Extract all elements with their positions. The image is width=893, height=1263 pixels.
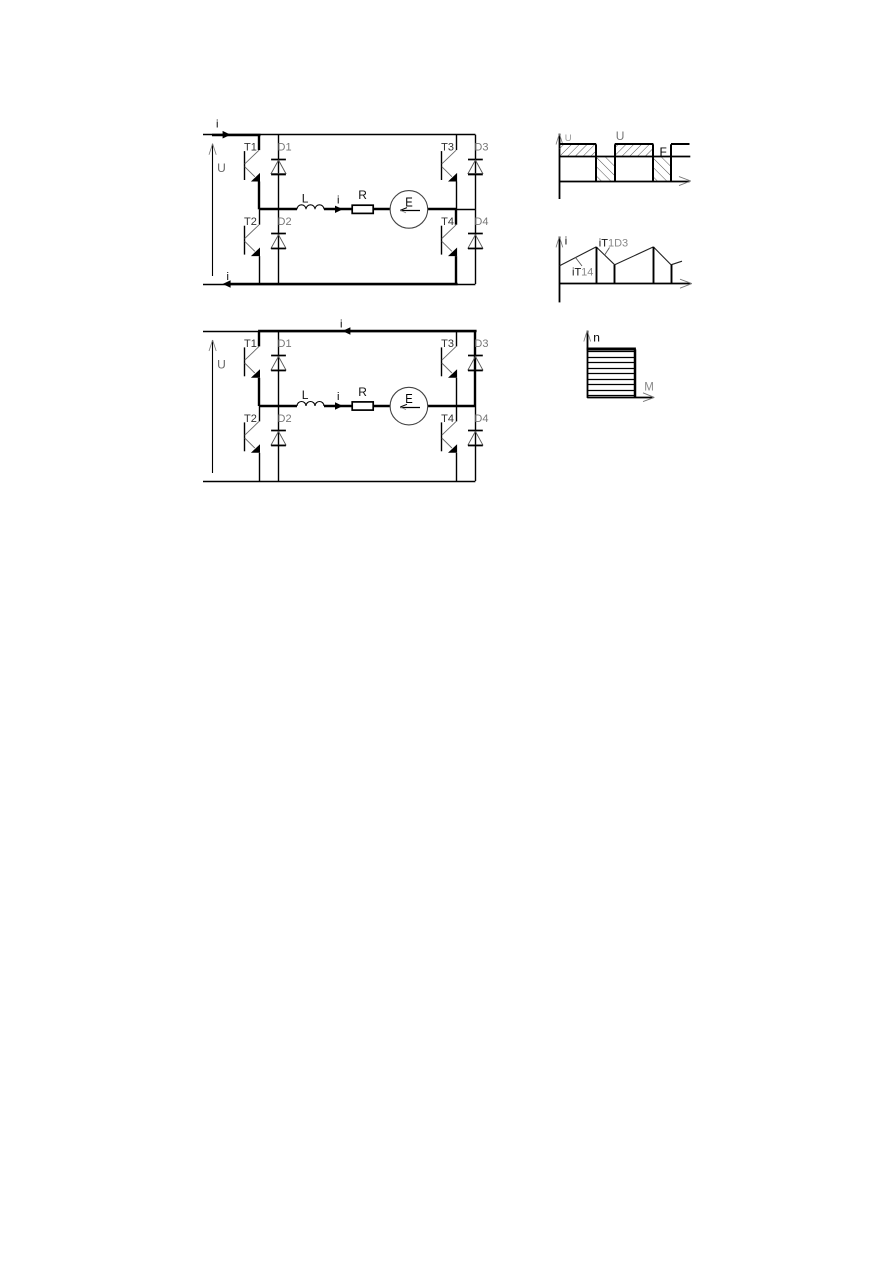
svg-text:U: U <box>217 161 226 175</box>
svg-text:i: i <box>337 194 339 206</box>
svg-text:iT14: iT14 <box>572 266 593 278</box>
svg-text:i: i <box>227 271 229 283</box>
svg-text:U: U <box>217 358 226 372</box>
svg-text:D3: D3 <box>474 338 488 350</box>
svg-text:D4: D4 <box>474 413 488 425</box>
svg-text:D1: D1 <box>278 142 292 154</box>
svg-text:D2: D2 <box>278 216 292 228</box>
svg-text:L: L <box>302 388 309 402</box>
svg-text:T1: T1 <box>244 142 257 154</box>
svg-text:i: i <box>565 235 567 247</box>
svg-text:R: R <box>358 385 367 399</box>
svg-text:T1: T1 <box>244 338 257 350</box>
svg-text:i: i <box>340 319 342 331</box>
svg-text:R: R <box>358 188 367 202</box>
svg-text:D3: D3 <box>474 142 488 154</box>
svg-text:U: U <box>616 129 625 143</box>
svg-text:D2: D2 <box>278 413 292 425</box>
svg-text:D4: D4 <box>474 216 488 228</box>
svg-text:n: n <box>593 331 600 345</box>
svg-text:i: i <box>216 119 218 131</box>
svg-text:T3: T3 <box>441 338 454 350</box>
svg-text:U: U <box>565 133 572 144</box>
svg-text:T2: T2 <box>244 216 257 228</box>
svg-text:L: L <box>302 191 309 205</box>
svg-text:T2: T2 <box>244 413 257 425</box>
svg-text:T4: T4 <box>441 413 454 425</box>
svg-text:iT1D3: iT1D3 <box>599 237 628 249</box>
svg-text:i: i <box>337 391 339 403</box>
svg-text:E: E <box>405 194 413 209</box>
svg-text:F: F <box>660 145 667 159</box>
svg-text:D1: D1 <box>278 338 292 350</box>
svg-text:E: E <box>405 391 413 406</box>
svg-text:T3: T3 <box>441 142 454 154</box>
svg-text:T4: T4 <box>441 216 454 228</box>
svg-text:M: M <box>644 381 654 393</box>
